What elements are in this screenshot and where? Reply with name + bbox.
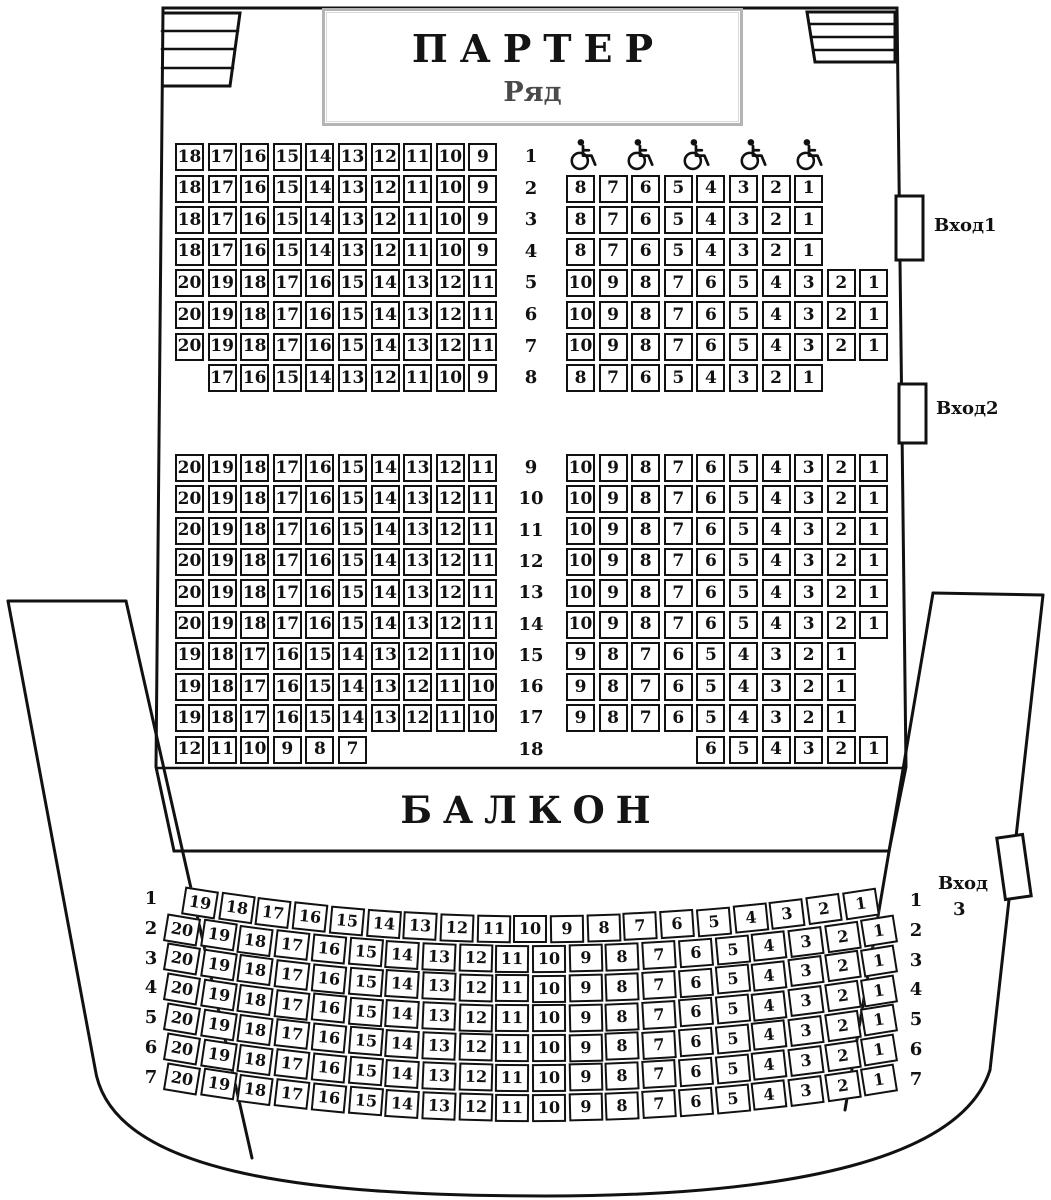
seat[interactable]: 10: [436, 175, 465, 203]
seat[interactable]: 10: [566, 454, 595, 482]
seat[interactable]: 15: [338, 485, 367, 513]
seat[interactable]: 11: [468, 333, 497, 361]
seat[interactable]: 5: [696, 673, 725, 701]
seat[interactable]: 8: [305, 736, 334, 764]
seat[interactable]: 14: [371, 611, 400, 639]
seat[interactable]: 4: [762, 485, 791, 513]
seat[interactable]: 6: [631, 238, 660, 266]
seat[interactable]: 13: [421, 1091, 456, 1120]
seat[interactable]: 1: [859, 579, 888, 607]
seat[interactable]: 5: [664, 238, 693, 266]
seat[interactable]: 11: [468, 517, 497, 545]
seat[interactable]: 19: [200, 949, 238, 982]
seat[interactable]: 18: [237, 1014, 274, 1046]
seat[interactable]: 14: [384, 1029, 420, 1059]
seat[interactable]: 9: [468, 175, 497, 203]
seat[interactable]: 8: [566, 206, 595, 234]
seat[interactable]: 8: [566, 238, 595, 266]
seat[interactable]: 3: [794, 333, 823, 361]
seat[interactable]: 1: [859, 269, 888, 297]
seat[interactable]: 12: [436, 454, 465, 482]
seat[interactable]: 13: [371, 642, 400, 670]
seat[interactable]: 6: [696, 517, 725, 545]
seat[interactable]: 16: [311, 1052, 348, 1083]
seat[interactable]: 14: [371, 548, 400, 576]
seat[interactable]: 17: [208, 175, 237, 203]
seat[interactable]: 8: [599, 642, 628, 670]
seat[interactable]: 17: [240, 673, 269, 701]
seat[interactable]: 8: [566, 175, 595, 203]
seat[interactable]: 7: [338, 736, 367, 764]
seat[interactable]: 9: [599, 611, 628, 639]
seat[interactable]: 6: [696, 269, 725, 297]
seat[interactable]: 11: [468, 454, 497, 482]
seat[interactable]: 2: [827, 485, 856, 513]
seat[interactable]: 1: [859, 611, 888, 639]
seat[interactable]: 9: [599, 485, 628, 513]
seat[interactable]: 4: [762, 736, 791, 764]
seat[interactable]: 12: [403, 673, 432, 701]
seat[interactable]: 3: [794, 517, 823, 545]
seat[interactable]: 3: [787, 1015, 824, 1047]
seat[interactable]: 12: [403, 642, 432, 670]
seat[interactable]: 17: [273, 517, 302, 545]
seat[interactable]: 20: [163, 1002, 201, 1035]
seat[interactable]: 16: [305, 548, 334, 576]
seat[interactable]: 18: [240, 485, 269, 513]
seat[interactable]: 2: [827, 301, 856, 329]
seat[interactable]: 11: [403, 175, 432, 203]
seat[interactable]: 2: [827, 517, 856, 545]
wheelchair-icon[interactable]: [566, 136, 600, 172]
seat[interactable]: 9: [568, 1063, 603, 1092]
seat[interactable]: 10: [566, 517, 595, 545]
seat[interactable]: 19: [208, 301, 237, 329]
seat[interactable]: 8: [605, 1091, 640, 1120]
seat[interactable]: 18: [240, 454, 269, 482]
seat[interactable]: 11: [403, 206, 432, 234]
seat[interactable]: 16: [240, 364, 269, 392]
seat[interactable]: 12: [436, 611, 465, 639]
seat[interactable]: 1: [794, 175, 823, 203]
seat[interactable]: 2: [827, 611, 856, 639]
seat[interactable]: 17: [274, 929, 311, 961]
seat[interactable]: 20: [163, 1032, 201, 1065]
seat[interactable]: 19: [208, 485, 237, 513]
seat[interactable]: 17: [273, 301, 302, 329]
seat[interactable]: 5: [714, 1053, 750, 1084]
seat[interactable]: 12: [458, 1003, 493, 1032]
seat[interactable]: 16: [240, 143, 269, 171]
seat[interactable]: 3: [769, 898, 806, 930]
seat[interactable]: 7: [641, 1059, 677, 1089]
seat[interactable]: 6: [696, 301, 725, 329]
seat[interactable]: 9: [550, 914, 584, 943]
seat[interactable]: 4: [751, 1049, 788, 1081]
seat[interactable]: 10: [468, 673, 497, 701]
seat[interactable]: 10: [566, 548, 595, 576]
seat[interactable]: 17: [240, 704, 269, 732]
seat[interactable]: 2: [824, 920, 862, 953]
seat[interactable]: 14: [384, 1089, 420, 1119]
seat[interactable]: 3: [787, 926, 824, 958]
seat[interactable]: 3: [787, 985, 824, 1017]
seat[interactable]: 11: [468, 611, 497, 639]
seat[interactable]: 19: [200, 1038, 238, 1071]
seat[interactable]: 4: [696, 364, 725, 392]
seat[interactable]: 17: [274, 989, 311, 1021]
seat[interactable]: 10: [532, 1034, 566, 1062]
seat[interactable]: 7: [641, 1000, 677, 1030]
seat[interactable]: 11: [495, 974, 529, 1002]
seat[interactable]: 16: [305, 454, 334, 482]
seat[interactable]: 16: [305, 485, 334, 513]
seat[interactable]: 18: [240, 269, 269, 297]
seat[interactable]: 13: [338, 175, 367, 203]
seat[interactable]: 8: [631, 333, 660, 361]
seat[interactable]: 6: [631, 364, 660, 392]
seat[interactable]: 4: [762, 517, 791, 545]
seat[interactable]: 18: [240, 611, 269, 639]
seat[interactable]: 8: [599, 704, 628, 732]
seat[interactable]: 15: [305, 704, 334, 732]
seat[interactable]: 12: [371, 175, 400, 203]
seat[interactable]: 14: [338, 673, 367, 701]
seat[interactable]: 15: [273, 175, 302, 203]
seat[interactable]: 5: [714, 994, 750, 1025]
seat[interactable]: 10: [532, 974, 566, 1002]
seat[interactable]: 16: [273, 704, 302, 732]
seat[interactable]: 5: [729, 333, 758, 361]
seat[interactable]: 18: [175, 175, 204, 203]
seat[interactable]: 20: [175, 517, 204, 545]
seat[interactable]: 17: [273, 333, 302, 361]
seat[interactable]: 18: [175, 143, 204, 171]
seat[interactable]: 18: [240, 517, 269, 545]
seat[interactable]: 13: [371, 704, 400, 732]
seat[interactable]: 7: [664, 548, 693, 576]
seat[interactable]: 11: [436, 704, 465, 732]
seat[interactable]: 12: [439, 913, 474, 942]
seat[interactable]: 19: [175, 642, 204, 670]
seat[interactable]: 15: [338, 333, 367, 361]
seat[interactable]: 3: [762, 673, 791, 701]
seat[interactable]: 15: [347, 996, 383, 1027]
seat[interactable]: 12: [458, 944, 493, 973]
seat[interactable]: 17: [208, 206, 237, 234]
seat[interactable]: 6: [696, 454, 725, 482]
seat[interactable]: 4: [729, 673, 758, 701]
seat[interactable]: 1: [859, 301, 888, 329]
seat[interactable]: 5: [714, 1024, 750, 1055]
seat[interactable]: 16: [273, 642, 302, 670]
seat[interactable]: 18: [208, 673, 237, 701]
seat[interactable]: 2: [805, 893, 842, 925]
seat[interactable]: 12: [436, 548, 465, 576]
seat[interactable]: 12: [436, 579, 465, 607]
seat[interactable]: 3: [787, 1045, 824, 1077]
seat[interactable]: 5: [729, 736, 758, 764]
seat[interactable]: 10: [566, 301, 595, 329]
seat[interactable]: 18: [175, 206, 204, 234]
seat[interactable]: 9: [568, 1003, 603, 1032]
seat[interactable]: 7: [599, 238, 628, 266]
seat[interactable]: 19: [200, 1068, 238, 1101]
seat[interactable]: 1: [827, 704, 856, 732]
seat[interactable]: 10: [532, 1064, 566, 1092]
seat[interactable]: 19: [208, 517, 237, 545]
seat[interactable]: 2: [762, 175, 791, 203]
seat[interactable]: 9: [568, 944, 603, 973]
seat[interactable]: 14: [384, 1059, 420, 1089]
seat[interactable]: 20: [163, 1062, 201, 1095]
seat[interactable]: 17: [274, 1019, 311, 1051]
seat[interactable]: 1: [827, 673, 856, 701]
seat[interactable]: 8: [605, 972, 640, 1001]
seat[interactable]: 8: [586, 913, 621, 942]
seat[interactable]: 11: [468, 579, 497, 607]
seat[interactable]: 19: [208, 269, 237, 297]
seat[interactable]: 6: [631, 206, 660, 234]
seat[interactable]: 7: [641, 970, 677, 1000]
seat[interactable]: 4: [696, 175, 725, 203]
seat[interactable]: 7: [641, 1089, 677, 1119]
seat[interactable]: 12: [458, 973, 493, 1002]
seat[interactable]: 2: [827, 548, 856, 576]
seat[interactable]: 7: [664, 454, 693, 482]
seat[interactable]: 18: [208, 642, 237, 670]
seat[interactable]: 13: [421, 942, 456, 971]
seat[interactable]: 4: [762, 579, 791, 607]
seat[interactable]: 11: [468, 548, 497, 576]
seat[interactable]: 17: [208, 364, 237, 392]
seat[interactable]: 3: [787, 955, 824, 987]
seat[interactable]: 7: [623, 912, 658, 942]
seat[interactable]: 2: [794, 642, 823, 670]
seat[interactable]: 4: [762, 611, 791, 639]
wheelchair-icon[interactable]: [623, 136, 657, 172]
seat[interactable]: 7: [664, 301, 693, 329]
seat[interactable]: 19: [200, 979, 238, 1012]
seat[interactable]: 5: [714, 934, 750, 965]
seat[interactable]: 13: [421, 972, 456, 1001]
seat[interactable]: 14: [305, 143, 334, 171]
seat[interactable]: 15: [347, 1026, 383, 1057]
seat[interactable]: 5: [696, 642, 725, 670]
seat[interactable]: 9: [599, 579, 628, 607]
seat[interactable]: 8: [631, 517, 660, 545]
seat[interactable]: 5: [729, 517, 758, 545]
seat[interactable]: 7: [664, 611, 693, 639]
seat[interactable]: 13: [403, 517, 432, 545]
seat[interactable]: 7: [631, 673, 660, 701]
seat[interactable]: 5: [696, 906, 732, 937]
seat[interactable]: 19: [175, 673, 204, 701]
seat[interactable]: 11: [495, 1093, 529, 1121]
seat[interactable]: 8: [631, 485, 660, 513]
seat[interactable]: 3: [794, 579, 823, 607]
seat[interactable]: 14: [371, 454, 400, 482]
seat[interactable]: 3: [794, 269, 823, 297]
seat[interactable]: 11: [495, 944, 529, 972]
seat[interactable]: 11: [468, 269, 497, 297]
seat[interactable]: 3: [762, 642, 791, 670]
seat[interactable]: 5: [664, 206, 693, 234]
seat[interactable]: 6: [664, 673, 693, 701]
seat[interactable]: 11: [436, 673, 465, 701]
seat[interactable]: 16: [305, 333, 334, 361]
seat[interactable]: 1: [860, 1064, 898, 1097]
seat[interactable]: 12: [371, 238, 400, 266]
seat[interactable]: 13: [421, 1001, 456, 1030]
seat[interactable]: 14: [371, 269, 400, 297]
seat[interactable]: 14: [305, 364, 334, 392]
seat[interactable]: 12: [175, 736, 204, 764]
seat[interactable]: 13: [338, 143, 367, 171]
seat[interactable]: 10: [566, 579, 595, 607]
seat[interactable]: 1: [860, 944, 898, 977]
seat[interactable]: 20: [163, 913, 201, 946]
seat[interactable]: 16: [305, 269, 334, 297]
seat[interactable]: 19: [175, 704, 204, 732]
seat[interactable]: 1: [859, 517, 888, 545]
seat[interactable]: 5: [729, 548, 758, 576]
seat[interactable]: 6: [659, 909, 695, 939]
seat[interactable]: 3: [729, 175, 758, 203]
seat[interactable]: 13: [403, 454, 432, 482]
seat[interactable]: 20: [175, 301, 204, 329]
seat[interactable]: 15: [305, 673, 334, 701]
seat[interactable]: 11: [403, 364, 432, 392]
seat[interactable]: 14: [338, 642, 367, 670]
seat[interactable]: 1: [794, 364, 823, 392]
seat[interactable]: 9: [273, 736, 302, 764]
seat[interactable]: 12: [371, 143, 400, 171]
seat[interactable]: 13: [403, 485, 432, 513]
seat[interactable]: 9: [468, 238, 497, 266]
seat[interactable]: 11: [495, 1064, 529, 1092]
seat[interactable]: 20: [163, 973, 201, 1006]
seat[interactable]: 7: [631, 704, 660, 732]
entrance-1-door[interactable]: [896, 196, 923, 260]
seat[interactable]: 8: [631, 548, 660, 576]
seat[interactable]: 7: [664, 485, 693, 513]
seat[interactable]: 3: [729, 206, 758, 234]
seat[interactable]: 1: [860, 974, 898, 1007]
seat[interactable]: 3: [729, 364, 758, 392]
seat[interactable]: 17: [208, 238, 237, 266]
seat[interactable]: 14: [371, 301, 400, 329]
seat[interactable]: 19: [200, 919, 238, 952]
seat[interactable]: 1: [794, 238, 823, 266]
seat[interactable]: 6: [678, 997, 714, 1027]
seat[interactable]: 3: [787, 1075, 824, 1107]
seat[interactable]: 14: [371, 579, 400, 607]
seat[interactable]: 14: [371, 333, 400, 361]
seat[interactable]: 6: [696, 611, 725, 639]
seat[interactable]: 13: [403, 333, 432, 361]
seat[interactable]: 14: [384, 940, 420, 970]
seat[interactable]: 5: [729, 454, 758, 482]
seat[interactable]: 2: [827, 269, 856, 297]
seat[interactable]: 20: [175, 485, 204, 513]
seat[interactable]: 6: [678, 967, 714, 997]
seat[interactable]: 7: [599, 175, 628, 203]
seat[interactable]: 1: [860, 1034, 898, 1067]
seat[interactable]: 4: [762, 548, 791, 576]
seat[interactable]: 17: [273, 579, 302, 607]
seat[interactable]: 7: [664, 579, 693, 607]
seat[interactable]: 6: [678, 1057, 714, 1087]
seat[interactable]: 15: [329, 905, 365, 936]
seat[interactable]: 12: [436, 485, 465, 513]
seat[interactable]: 13: [402, 911, 437, 941]
seat[interactable]: 19: [181, 886, 219, 919]
seat[interactable]: 10: [532, 1094, 566, 1122]
seat[interactable]: 20: [175, 611, 204, 639]
seat[interactable]: 5: [729, 269, 758, 297]
seat[interactable]: 16: [240, 238, 269, 266]
seat[interactable]: 18: [237, 924, 274, 956]
seat[interactable]: 18: [218, 892, 256, 924]
seat[interactable]: 5: [729, 579, 758, 607]
seat[interactable]: 16: [273, 673, 302, 701]
seat[interactable]: 2: [827, 454, 856, 482]
seat[interactable]: 17: [273, 548, 302, 576]
seat[interactable]: 15: [305, 642, 334, 670]
seat[interactable]: 13: [403, 301, 432, 329]
seat[interactable]: 3: [794, 454, 823, 482]
seat[interactable]: 19: [208, 579, 237, 607]
seat[interactable]: 13: [403, 269, 432, 297]
seat[interactable]: 9: [566, 673, 595, 701]
seat[interactable]: 10: [566, 333, 595, 361]
seat[interactable]: 15: [347, 1086, 383, 1117]
seat[interactable]: 7: [664, 269, 693, 297]
seat[interactable]: 5: [729, 611, 758, 639]
seat[interactable]: 8: [631, 579, 660, 607]
seat[interactable]: 17: [274, 959, 311, 991]
seat[interactable]: 15: [338, 548, 367, 576]
seat[interactable]: 11: [403, 238, 432, 266]
seat[interactable]: 4: [751, 1020, 788, 1052]
seat[interactable]: 3: [794, 548, 823, 576]
seat[interactable]: 10: [468, 704, 497, 732]
seat[interactable]: 15: [347, 937, 383, 968]
seat[interactable]: 5: [696, 704, 725, 732]
seat[interactable]: 4: [729, 642, 758, 670]
seat[interactable]: 15: [347, 967, 383, 998]
wheelchair-icon[interactable]: [679, 136, 713, 172]
seat[interactable]: 17: [274, 1048, 311, 1080]
seat[interactable]: 13: [338, 238, 367, 266]
seat[interactable]: 4: [696, 238, 725, 266]
seat[interactable]: 14: [338, 704, 367, 732]
seat[interactable]: 11: [476, 914, 511, 943]
seat[interactable]: 17: [255, 897, 292, 929]
seat[interactable]: 12: [436, 269, 465, 297]
seat[interactable]: 1: [859, 548, 888, 576]
seat[interactable]: 4: [751, 960, 788, 992]
seat[interactable]: 17: [273, 454, 302, 482]
seat[interactable]: 12: [458, 1033, 493, 1062]
seat[interactable]: 2: [827, 736, 856, 764]
seat[interactable]: 10: [468, 642, 497, 670]
seat[interactable]: 14: [305, 238, 334, 266]
seat[interactable]: 9: [599, 454, 628, 482]
seat[interactable]: 7: [641, 940, 677, 970]
seat[interactable]: 11: [495, 1034, 529, 1062]
